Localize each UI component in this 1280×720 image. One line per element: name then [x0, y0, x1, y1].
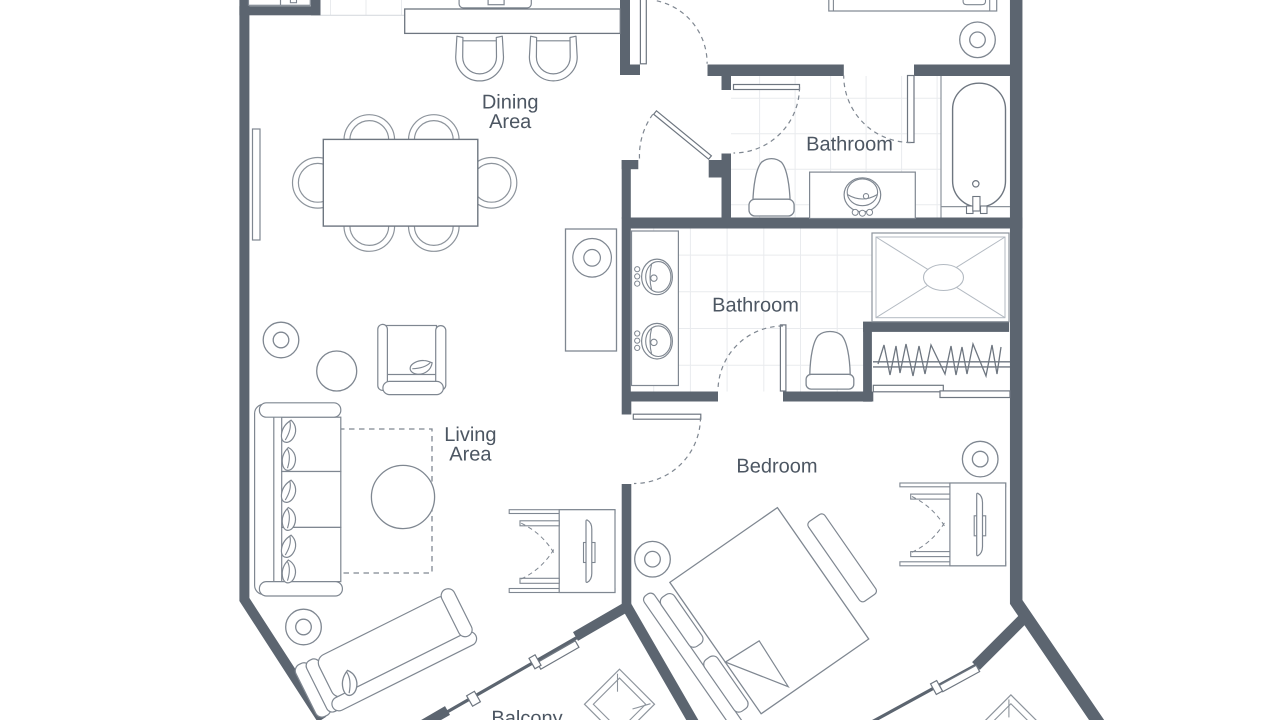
svg-text:Balcony: Balcony	[491, 708, 562, 720]
svg-text:Area: Area	[449, 444, 492, 466]
svg-text:Bathroom: Bathroom	[712, 295, 799, 317]
svg-text:Bathroom: Bathroom	[806, 133, 893, 155]
svg-text:Area: Area	[489, 111, 532, 133]
svg-text:Bedroom: Bedroom	[736, 455, 817, 477]
